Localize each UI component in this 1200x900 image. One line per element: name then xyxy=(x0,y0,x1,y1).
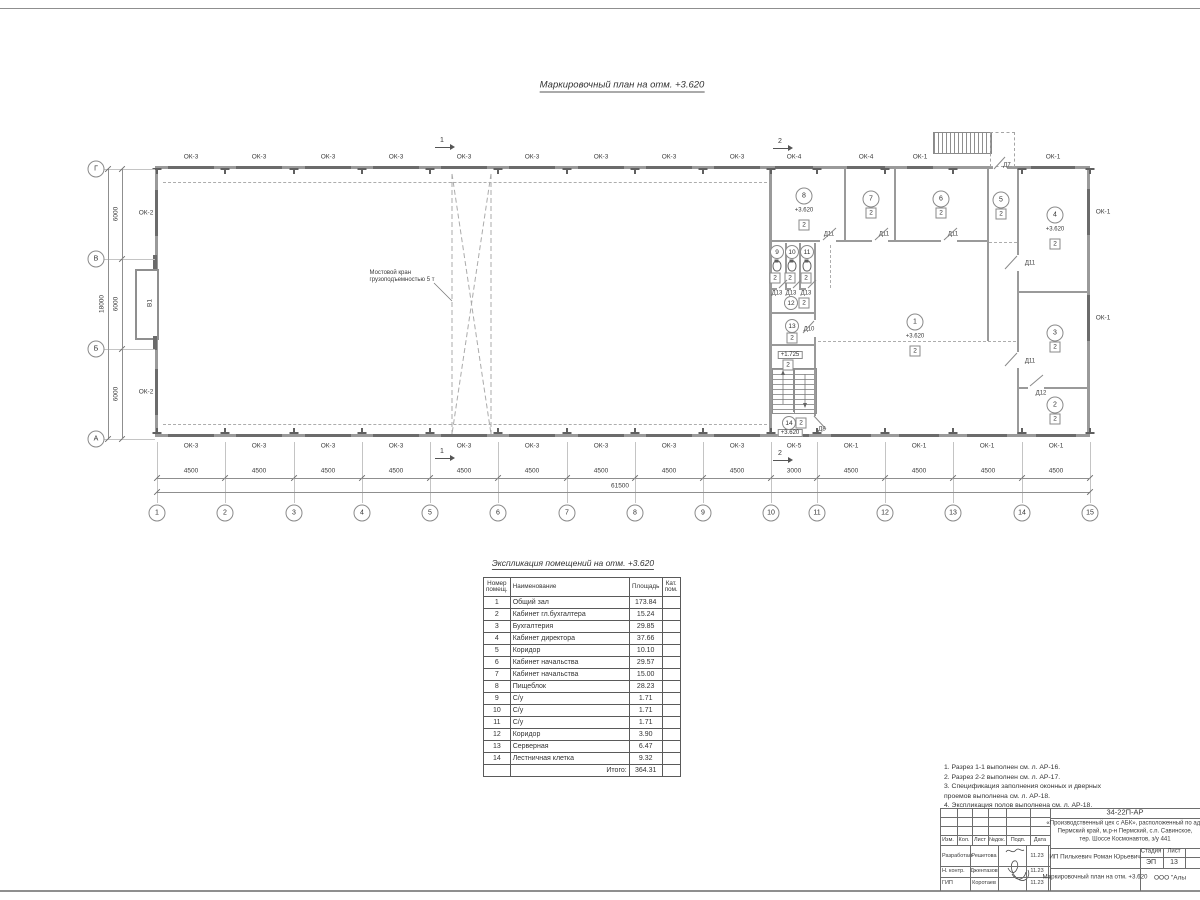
window-bar xyxy=(847,166,885,169)
dim-label: 4500 xyxy=(1049,467,1063,474)
window-label: ОК-3 xyxy=(252,153,267,160)
column-mark xyxy=(702,170,704,174)
window-bar xyxy=(967,434,1007,437)
frame-bottom xyxy=(0,890,1200,892)
crane-rail-dashed xyxy=(163,424,767,425)
table-row: 14Лестничная клетка9.32 xyxy=(484,753,681,765)
section-mark-line xyxy=(773,460,788,461)
section-mark-arrow xyxy=(788,145,796,151)
room-category: 2 xyxy=(866,208,877,219)
table-header: Площадь xyxy=(629,578,662,597)
table-cell xyxy=(662,753,680,765)
extension-line xyxy=(104,349,155,350)
room-bubble: 5 xyxy=(993,192,1010,209)
door-label: Д11 xyxy=(1025,359,1035,366)
table-cell: Кабинет начальства xyxy=(510,657,629,669)
column-mark xyxy=(224,428,226,432)
window-label: ОК-3 xyxy=(184,153,199,160)
stamp-col-header: Дата xyxy=(1034,837,1046,843)
wall xyxy=(987,168,989,341)
window-bar xyxy=(168,166,214,169)
toilet-icon xyxy=(803,261,812,272)
room-category: 2 xyxy=(936,208,947,219)
dim-label: 4500 xyxy=(981,467,995,474)
table-row: 11С/у1.71 xyxy=(484,717,681,729)
dim-label: 4500 xyxy=(912,467,926,474)
table-cell: 8 xyxy=(484,681,511,693)
column-mark xyxy=(426,432,435,434)
stamp-line xyxy=(998,845,999,891)
column-mark xyxy=(699,432,708,434)
table-cell xyxy=(662,633,680,645)
table-cell xyxy=(662,729,680,741)
gate-post xyxy=(153,336,157,350)
stamp-stage-label: Стадия xyxy=(1141,849,1161,856)
window-label: ОК-1 xyxy=(844,442,859,449)
table-row: 7Кабинет начальства15.00 xyxy=(484,669,681,681)
table-cell xyxy=(662,741,680,753)
stamp-line xyxy=(1050,868,1200,869)
table-row: 12Коридор3.90 xyxy=(484,729,681,741)
room-bubble: 9 xyxy=(770,245,784,259)
table-cell: 1 xyxy=(484,597,511,609)
section-mark-arrow xyxy=(450,144,458,150)
table-cell: 10.10 xyxy=(629,645,662,657)
axis-bubble: 11 xyxy=(809,505,826,522)
axis-bubble: 14 xyxy=(1014,505,1031,522)
table-cell: 15.24 xyxy=(629,609,662,621)
window-bar xyxy=(578,434,624,437)
gate-post xyxy=(153,255,157,269)
section-mark-arrow xyxy=(788,457,796,463)
column-mark xyxy=(429,428,431,432)
table-cell: Итого: xyxy=(510,765,629,777)
axis-bubble: 15 xyxy=(1082,505,1099,522)
axis-bubble: В xyxy=(88,251,105,268)
toilet-icon xyxy=(773,261,782,272)
table-row: 8Пищеблок28.23 xyxy=(484,681,681,693)
stair-flight xyxy=(772,368,795,414)
column-mark xyxy=(358,432,367,434)
extension-line xyxy=(225,442,226,503)
column-mark xyxy=(156,428,158,432)
column-mark xyxy=(884,428,886,432)
window-bar xyxy=(1036,434,1076,437)
window-label: ОК-1 xyxy=(1096,208,1111,215)
extension-line xyxy=(430,442,431,503)
room-category: 2 xyxy=(785,273,796,284)
explication-table: Номер помещ.НаименованиеПлощадьКат. пом.… xyxy=(483,577,681,777)
dim-label: 4500 xyxy=(184,467,198,474)
table-cell: 6 xyxy=(484,657,511,669)
stamp-name: Коротаев xyxy=(972,880,996,886)
window-label: ОК-2 xyxy=(139,388,154,395)
window-bar xyxy=(441,166,487,169)
window-label: ОК-3 xyxy=(457,153,472,160)
window-label: ОК-1 xyxy=(912,442,927,449)
room-category: 2 xyxy=(996,209,1007,220)
column-mark xyxy=(361,170,363,174)
table-cell: 28.23 xyxy=(629,681,662,693)
window-bar xyxy=(305,434,351,437)
window-bar xyxy=(1031,166,1075,169)
stamp-sheet-title: Маркировочный план на отм. +3.620 xyxy=(1043,873,1148,880)
room-bubble: 4 xyxy=(1047,207,1064,224)
door-label: Д13 xyxy=(772,291,783,298)
window-label: ОК-5 xyxy=(787,442,802,449)
extension-line xyxy=(635,442,636,503)
extension-line xyxy=(703,442,704,503)
dim-label: 4500 xyxy=(389,467,403,474)
column-mark xyxy=(634,428,636,432)
column-mark xyxy=(952,428,954,432)
table-cell: Кабинет директора xyxy=(510,633,629,645)
extension-line xyxy=(498,442,499,503)
note-line: 2. Разрез 2-2 выполнен см. л. АР-17. xyxy=(944,773,1101,783)
wall xyxy=(894,168,896,242)
column-mark xyxy=(497,170,499,174)
stamp-line xyxy=(1030,808,1031,845)
dim-label: 6000 xyxy=(112,297,119,311)
stamp-line xyxy=(1140,857,1200,858)
table-cell: 10 xyxy=(484,705,511,717)
stamp-sheet-value: 13 xyxy=(1170,859,1178,867)
table-cell: 37.66 xyxy=(629,633,662,645)
wall xyxy=(844,168,846,242)
table-row: 3Бухгалтерия29.85 xyxy=(484,621,681,633)
table-cell: 29.85 xyxy=(629,621,662,633)
stamp-line xyxy=(940,866,1050,867)
door-label: Д11 xyxy=(948,232,958,239)
window-bar xyxy=(1087,189,1090,235)
table-header: Наименование xyxy=(510,578,629,597)
door-opening xyxy=(872,238,888,244)
room-category: 2 xyxy=(910,346,921,357)
column-mark xyxy=(290,432,299,434)
stamp-project-line3: тер. Шоссе Космонавтов, з/у 441 xyxy=(1079,837,1170,844)
table-header: Номер помещ. xyxy=(484,578,511,597)
door-opening xyxy=(941,238,957,244)
axis-bubble: 4 xyxy=(354,505,371,522)
room-bubble: 13 xyxy=(785,319,799,333)
window-label: ОК-1 xyxy=(1096,314,1111,321)
plan-title: Маркировочный план на отм. +3.620 xyxy=(540,80,705,93)
table-cell xyxy=(662,705,680,717)
column-mark xyxy=(1021,428,1023,432)
axis-bubble: А xyxy=(88,431,105,448)
section-mark-line xyxy=(435,147,450,148)
table-cell xyxy=(662,681,680,693)
stamp-col-header: Лист xyxy=(974,837,986,843)
room-bubble: 10 xyxy=(785,245,799,259)
elevation-box: +1.725 xyxy=(778,351,803,359)
table-cell: 3 xyxy=(484,621,511,633)
window-label: ОК-1 xyxy=(913,153,928,160)
stamp-col-header: №док. xyxy=(989,837,1005,843)
stair-divider xyxy=(793,368,794,412)
table-header-row: Номер помещ.НаименованиеПлощадьКат. пом. xyxy=(484,578,681,597)
axis-bubble: 3 xyxy=(286,505,303,522)
axis-bubble: 2 xyxy=(217,505,234,522)
table-cell xyxy=(662,693,680,705)
stamp-line xyxy=(1163,848,1164,868)
column-mark xyxy=(702,428,704,432)
window-bar xyxy=(236,166,282,169)
table-cell: 7 xyxy=(484,669,511,681)
section-mark-number: 1 xyxy=(440,137,444,145)
section-mark-line xyxy=(435,458,450,459)
column-mark xyxy=(361,428,363,432)
table-cell: 11 xyxy=(484,717,511,729)
dim-line xyxy=(122,169,123,439)
explication-title: Экспликация помещений на отм. +3.620 xyxy=(492,558,654,570)
room-category: 2 xyxy=(770,273,781,284)
room-bubble: 7 xyxy=(863,191,880,208)
stamp-name: Джентазов xyxy=(970,868,997,874)
room-bubble: 6 xyxy=(933,191,950,208)
column-mark xyxy=(156,170,158,174)
room-bubble: 2 xyxy=(1047,397,1064,414)
room-bubble: 12 xyxy=(784,296,798,310)
window-bar xyxy=(907,166,933,169)
room-category: 2 xyxy=(787,333,798,344)
room-category: 2 xyxy=(799,220,810,231)
window-bar xyxy=(509,166,555,169)
table-cell xyxy=(662,621,680,633)
axis-bubble: 1 xyxy=(149,505,166,522)
room-bubble: 3 xyxy=(1047,325,1064,342)
stamp-sheet-label: Лист xyxy=(1167,849,1180,856)
stamp-name: Решетова xyxy=(971,853,996,859)
stamp-line xyxy=(1185,848,1186,868)
table-row: 13Серверная6.47 xyxy=(484,741,681,753)
door-label: Д10 xyxy=(804,327,815,334)
window-label: ОК-2 xyxy=(139,209,154,216)
column-mark xyxy=(949,432,958,434)
dashed-line xyxy=(818,341,1016,342)
extension-line xyxy=(294,442,295,503)
door-label: Д7 xyxy=(1003,163,1010,170)
table-header: Кат. пом. xyxy=(662,578,680,597)
column-mark xyxy=(494,432,503,434)
window-label: ОК-3 xyxy=(321,153,336,160)
stamp-line xyxy=(988,808,989,845)
window-bar xyxy=(441,434,487,437)
table-cell: С/у xyxy=(510,693,629,705)
stamp-line xyxy=(940,808,1200,809)
dim-label: 4500 xyxy=(525,467,539,474)
note-line: 3. Спецификация заполнения оконных и две… xyxy=(944,782,1101,801)
table-row: 2Кабинет гл.бухгалтера15.24 xyxy=(484,609,681,621)
room-category: 2 xyxy=(799,298,810,309)
column-mark xyxy=(293,170,295,174)
notes: 1. Разрез 1-1 выполнен см. л. АР-16.2. Р… xyxy=(944,763,1101,811)
window-bar xyxy=(831,434,871,437)
extension-line xyxy=(885,442,886,503)
wall xyxy=(770,344,816,346)
column-mark xyxy=(566,170,568,174)
room-category: 2 xyxy=(1050,414,1061,425)
dashed-line xyxy=(989,242,1017,243)
stamp-line xyxy=(940,808,941,891)
room-category: 2 xyxy=(801,273,812,284)
stamp-doc-number: 34-22П-АР xyxy=(1106,809,1143,818)
table-cell: Коридор xyxy=(510,729,629,741)
extension-line xyxy=(1090,442,1091,503)
extension-line xyxy=(157,442,158,503)
section-mark-number: 2 xyxy=(778,138,782,146)
table-cell xyxy=(662,765,680,777)
window-label: ОК-3 xyxy=(525,153,540,160)
stamp-date: 11.23 xyxy=(1030,853,1043,859)
door-label: Д11 xyxy=(879,232,889,239)
window-label: ОК-3 xyxy=(525,442,540,449)
extension-line xyxy=(817,442,818,503)
table-row: 6Кабинет начальства29.57 xyxy=(484,657,681,669)
door-label: Д11 xyxy=(1025,261,1035,268)
frame-top xyxy=(0,8,1200,9)
table-cell xyxy=(484,765,511,777)
table-cell: 1.71 xyxy=(629,717,662,729)
extension-line xyxy=(567,442,568,503)
window-label: ОК-3 xyxy=(389,442,404,449)
table-cell: Коридор xyxy=(510,645,629,657)
table-cell: 13 xyxy=(484,741,511,753)
window-label: ОК-3 xyxy=(730,153,745,160)
window-label: ОК-4 xyxy=(787,153,802,160)
extension-line xyxy=(771,442,772,503)
column-mark xyxy=(566,428,568,432)
drawing-sheet: Маркировочный план на отм. +3.620 В1ОК-3… xyxy=(0,0,1200,900)
table-cell xyxy=(662,645,680,657)
table-cell xyxy=(662,657,680,669)
axis-bubble: 9 xyxy=(695,505,712,522)
section-mark-number: 2 xyxy=(778,450,782,458)
elevation-box: +3.620 xyxy=(778,429,803,437)
table-cell: 12 xyxy=(484,729,511,741)
table-row: 5Коридор10.10 xyxy=(484,645,681,657)
stamp-line xyxy=(1048,845,1049,891)
room-category: 2 xyxy=(1050,239,1061,250)
table-cell: 6.47 xyxy=(629,741,662,753)
column-mark xyxy=(816,170,818,174)
dim-label: 4500 xyxy=(457,467,471,474)
stamp-line xyxy=(1006,808,1007,845)
stamp-project-line1: «Производственный цех с АБК», расположен… xyxy=(1046,821,1200,828)
stamp-role: ГИП xyxy=(942,880,953,886)
wall xyxy=(1017,168,1019,437)
door-label: Д8 xyxy=(818,427,825,434)
column-mark xyxy=(293,428,295,432)
wall xyxy=(814,243,816,320)
stair-flight xyxy=(794,368,817,414)
window-label: ОК-1 xyxy=(1046,153,1061,160)
table-row: 10С/у1.71 xyxy=(484,705,681,717)
column-mark xyxy=(952,170,954,174)
axis-bubble: 12 xyxy=(877,505,894,522)
table-cell: Лестничная клетка xyxy=(510,753,629,765)
column-mark xyxy=(1089,428,1091,432)
room-elevation: +3.620 xyxy=(1046,227,1065,234)
stamp-col-header: Подп. xyxy=(1011,837,1026,843)
window-label: ОК-3 xyxy=(594,153,609,160)
axis-bubble: 5 xyxy=(422,505,439,522)
column-mark xyxy=(1089,170,1091,174)
window-label: ОК-3 xyxy=(662,153,677,160)
table-cell: Бухгалтерия xyxy=(510,621,629,633)
column-mark xyxy=(1018,432,1027,434)
column-mark xyxy=(634,170,636,174)
room-elevation: +3.620 xyxy=(906,334,925,341)
axis-bubble: 6 xyxy=(490,505,507,522)
dashed-line xyxy=(830,245,831,288)
axis-bubble: 13 xyxy=(945,505,962,522)
room-bubble: 1 xyxy=(907,314,924,331)
window-bar xyxy=(373,166,419,169)
door-opening xyxy=(1016,255,1020,271)
window-label: ОК-3 xyxy=(730,442,745,449)
room-category: 2 xyxy=(796,418,807,429)
wall xyxy=(1017,291,1090,293)
room-category: 2 xyxy=(783,360,794,371)
table-cell: Общий зал xyxy=(510,597,629,609)
extension-line xyxy=(104,259,155,260)
note-line: 1. Разрез 1-1 выполнен см. л. АР-16. xyxy=(944,763,1101,773)
crane-rail-dashed xyxy=(163,182,767,183)
column-mark xyxy=(563,432,572,434)
dim-line xyxy=(157,478,1090,479)
column-mark xyxy=(1021,170,1023,174)
window-label: ОК-1 xyxy=(980,442,995,449)
extension-line xyxy=(953,442,954,503)
window-bar xyxy=(373,434,419,437)
stamp-line xyxy=(970,845,971,891)
stamp-role: Разработал xyxy=(942,853,972,859)
stamp-line xyxy=(940,845,1050,846)
window-label: ОК-3 xyxy=(389,153,404,160)
dim-label: 4500 xyxy=(321,467,335,474)
table-row: 9С/у1.71 xyxy=(484,693,681,705)
table-cell: Серверная xyxy=(510,741,629,753)
window-label: ОК-1 xyxy=(1049,442,1064,449)
table-cell xyxy=(662,597,680,609)
door-opening xyxy=(820,238,836,244)
window-label: ОК-3 xyxy=(321,442,336,449)
dim-total-label: 61500 xyxy=(611,482,629,489)
window-label: ОК-3 xyxy=(594,442,609,449)
table-cell xyxy=(662,669,680,681)
table-cell: 14 xyxy=(484,753,511,765)
dim-label: 4500 xyxy=(594,467,608,474)
door-label: Д13 xyxy=(801,291,812,298)
extension-line xyxy=(362,442,363,503)
stamp-client: ИП Пилькевич Роман Юрьевич xyxy=(1049,853,1140,860)
section-mark-arrow xyxy=(450,455,458,461)
axis-bubble: 7 xyxy=(559,505,576,522)
window-label: ОК-3 xyxy=(184,442,199,449)
room-bubble: 8 xyxy=(796,188,813,205)
table-cell: 1.71 xyxy=(629,705,662,717)
table-cell: С/у xyxy=(510,717,629,729)
column-mark xyxy=(221,432,230,434)
window-bar xyxy=(509,434,555,437)
column-mark xyxy=(631,432,640,434)
table-row: 4Кабинет директора37.66 xyxy=(484,633,681,645)
room-bubble: 11 xyxy=(800,245,814,259)
window-bar xyxy=(714,434,760,437)
window-bar xyxy=(155,369,158,415)
dim-total-label: 18000 xyxy=(98,295,105,313)
